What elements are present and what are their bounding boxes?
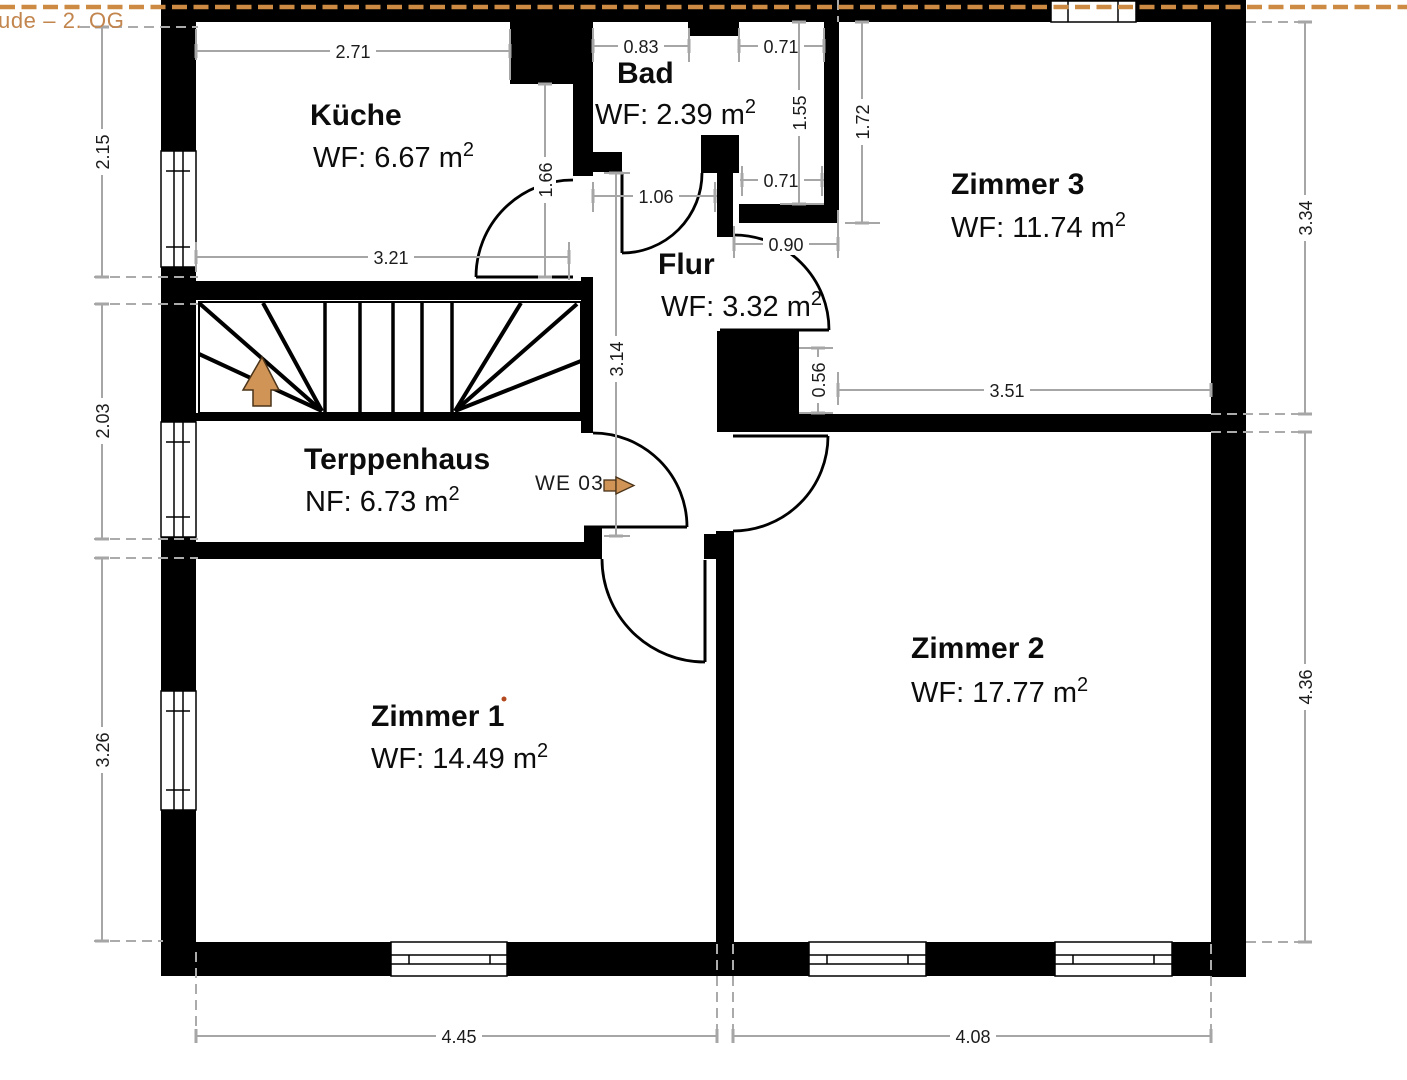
svg-text:4.08: 4.08 (955, 1027, 990, 1047)
svg-text:WF: 2.39 m2: WF: 2.39 m2 (595, 96, 756, 131)
svg-text:0.56: 0.56 (809, 362, 829, 397)
svg-text:4.45: 4.45 (441, 1027, 476, 1047)
svg-text:Terppenhaus: Terppenhaus (304, 443, 490, 476)
svg-text:0.90: 0.90 (768, 235, 803, 255)
svg-text:2.15: 2.15 (93, 134, 113, 169)
svg-text:2.03: 2.03 (93, 403, 113, 438)
svg-text:Zimmer 1: Zimmer 1 (371, 700, 504, 733)
svg-text:Zimmer 3: Zimmer 3 (951, 168, 1084, 201)
svg-text:2.71: 2.71 (335, 42, 370, 62)
svg-text:WF: 14.49 m2: WF: 14.49 m2 (371, 740, 548, 775)
svg-text:3.51: 3.51 (989, 381, 1024, 401)
svg-text:3.21: 3.21 (373, 248, 408, 268)
svg-text:1.66: 1.66 (536, 162, 556, 197)
svg-text:0.71: 0.71 (763, 37, 798, 57)
svg-text:4.36: 4.36 (1296, 669, 1316, 704)
svg-text:1.06: 1.06 (638, 187, 673, 207)
svg-text:ude – 2. OG: ude – 2. OG (0, 8, 124, 33)
svg-text:NF: 6.73 m2: NF: 6.73 m2 (305, 483, 460, 518)
svg-text:1.55: 1.55 (790, 95, 810, 130)
svg-text:3.14: 3.14 (607, 341, 627, 376)
svg-text:Zimmer 2: Zimmer 2 (911, 632, 1044, 665)
svg-text:WE 03: WE 03 (535, 472, 604, 495)
svg-text:1.72: 1.72 (853, 104, 873, 139)
svg-text:0.83: 0.83 (623, 37, 658, 57)
svg-text:WF: 3.32 m2: WF: 3.32 m2 (661, 288, 822, 323)
svg-text:Bad: Bad (617, 57, 674, 90)
svg-text:0.71: 0.71 (763, 171, 798, 191)
svg-text:WF: 11.74 m2: WF: 11.74 m2 (951, 209, 1126, 244)
svg-text:WF: 17.77 m2: WF: 17.77 m2 (911, 674, 1088, 709)
svg-text:Flur: Flur (658, 248, 715, 281)
svg-text:WF: 6.67 m2: WF: 6.67 m2 (313, 139, 474, 174)
svg-text:3.34: 3.34 (1296, 200, 1316, 235)
svg-text:3.26: 3.26 (93, 732, 113, 767)
svg-text:Küche: Küche (310, 99, 402, 132)
